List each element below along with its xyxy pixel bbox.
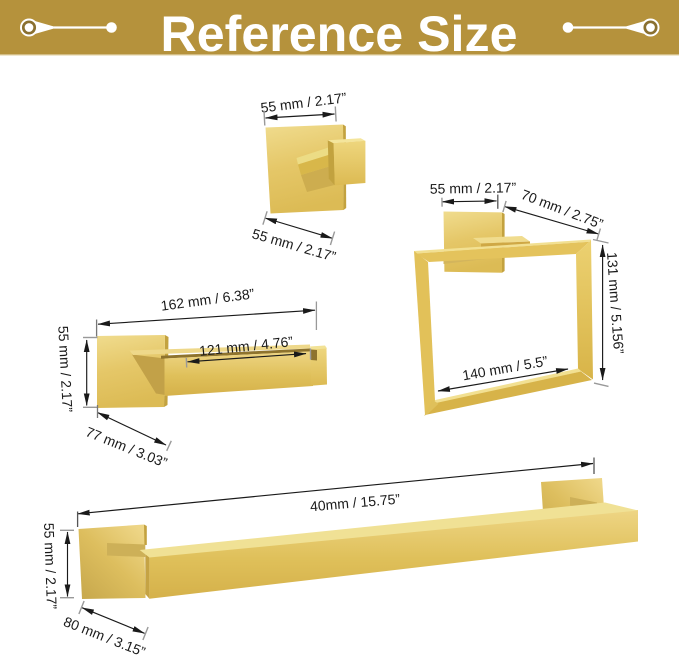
svg-text:55 mm / 2.17”: 55 mm / 2.17” [430,179,517,197]
svg-text:55 mm / 2.17”: 55 mm / 2.17” [41,523,60,610]
svg-text:Reference Size: Reference Size [161,6,518,62]
